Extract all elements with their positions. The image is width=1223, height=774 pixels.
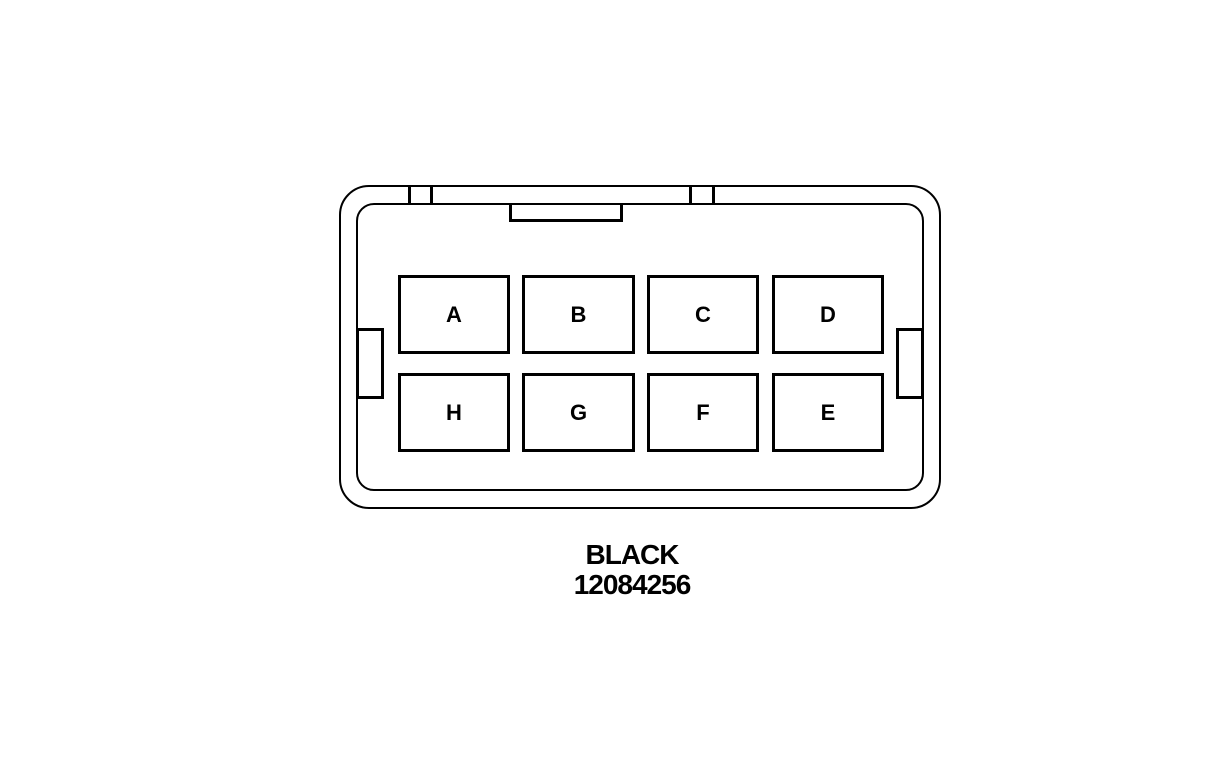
pin-cavity-c: C xyxy=(647,275,759,354)
connector-caption: BLACK 12084256 xyxy=(332,540,932,600)
pin-label: E xyxy=(821,400,836,426)
connector-diagram: A B C D H G F E BLACK 12084256 xyxy=(0,0,1223,774)
connector-color-label: BLACK xyxy=(332,540,932,570)
lock-tab-left xyxy=(356,328,384,399)
pin-cavity-g: G xyxy=(522,373,635,452)
pin-cavity-e: E xyxy=(772,373,884,452)
connector-part-number: 12084256 xyxy=(332,570,932,600)
pin-cavity-b: B xyxy=(522,275,635,354)
pin-label: A xyxy=(446,302,462,328)
pin-label: H xyxy=(446,400,462,426)
pin-cavity-h: H xyxy=(398,373,510,452)
pin-label: G xyxy=(570,400,587,426)
pin-cavity-f: F xyxy=(647,373,759,452)
pin-label: D xyxy=(820,302,836,328)
index-tab-top-right xyxy=(689,185,715,205)
pin-label: B xyxy=(571,302,587,328)
pin-label: F xyxy=(696,400,709,426)
index-tab-top-left xyxy=(408,185,433,205)
keying-slot xyxy=(509,205,623,222)
lock-tab-right xyxy=(896,328,924,399)
pin-cavity-a: A xyxy=(398,275,510,354)
pin-label: C xyxy=(695,302,711,328)
pin-cavity-d: D xyxy=(772,275,884,354)
